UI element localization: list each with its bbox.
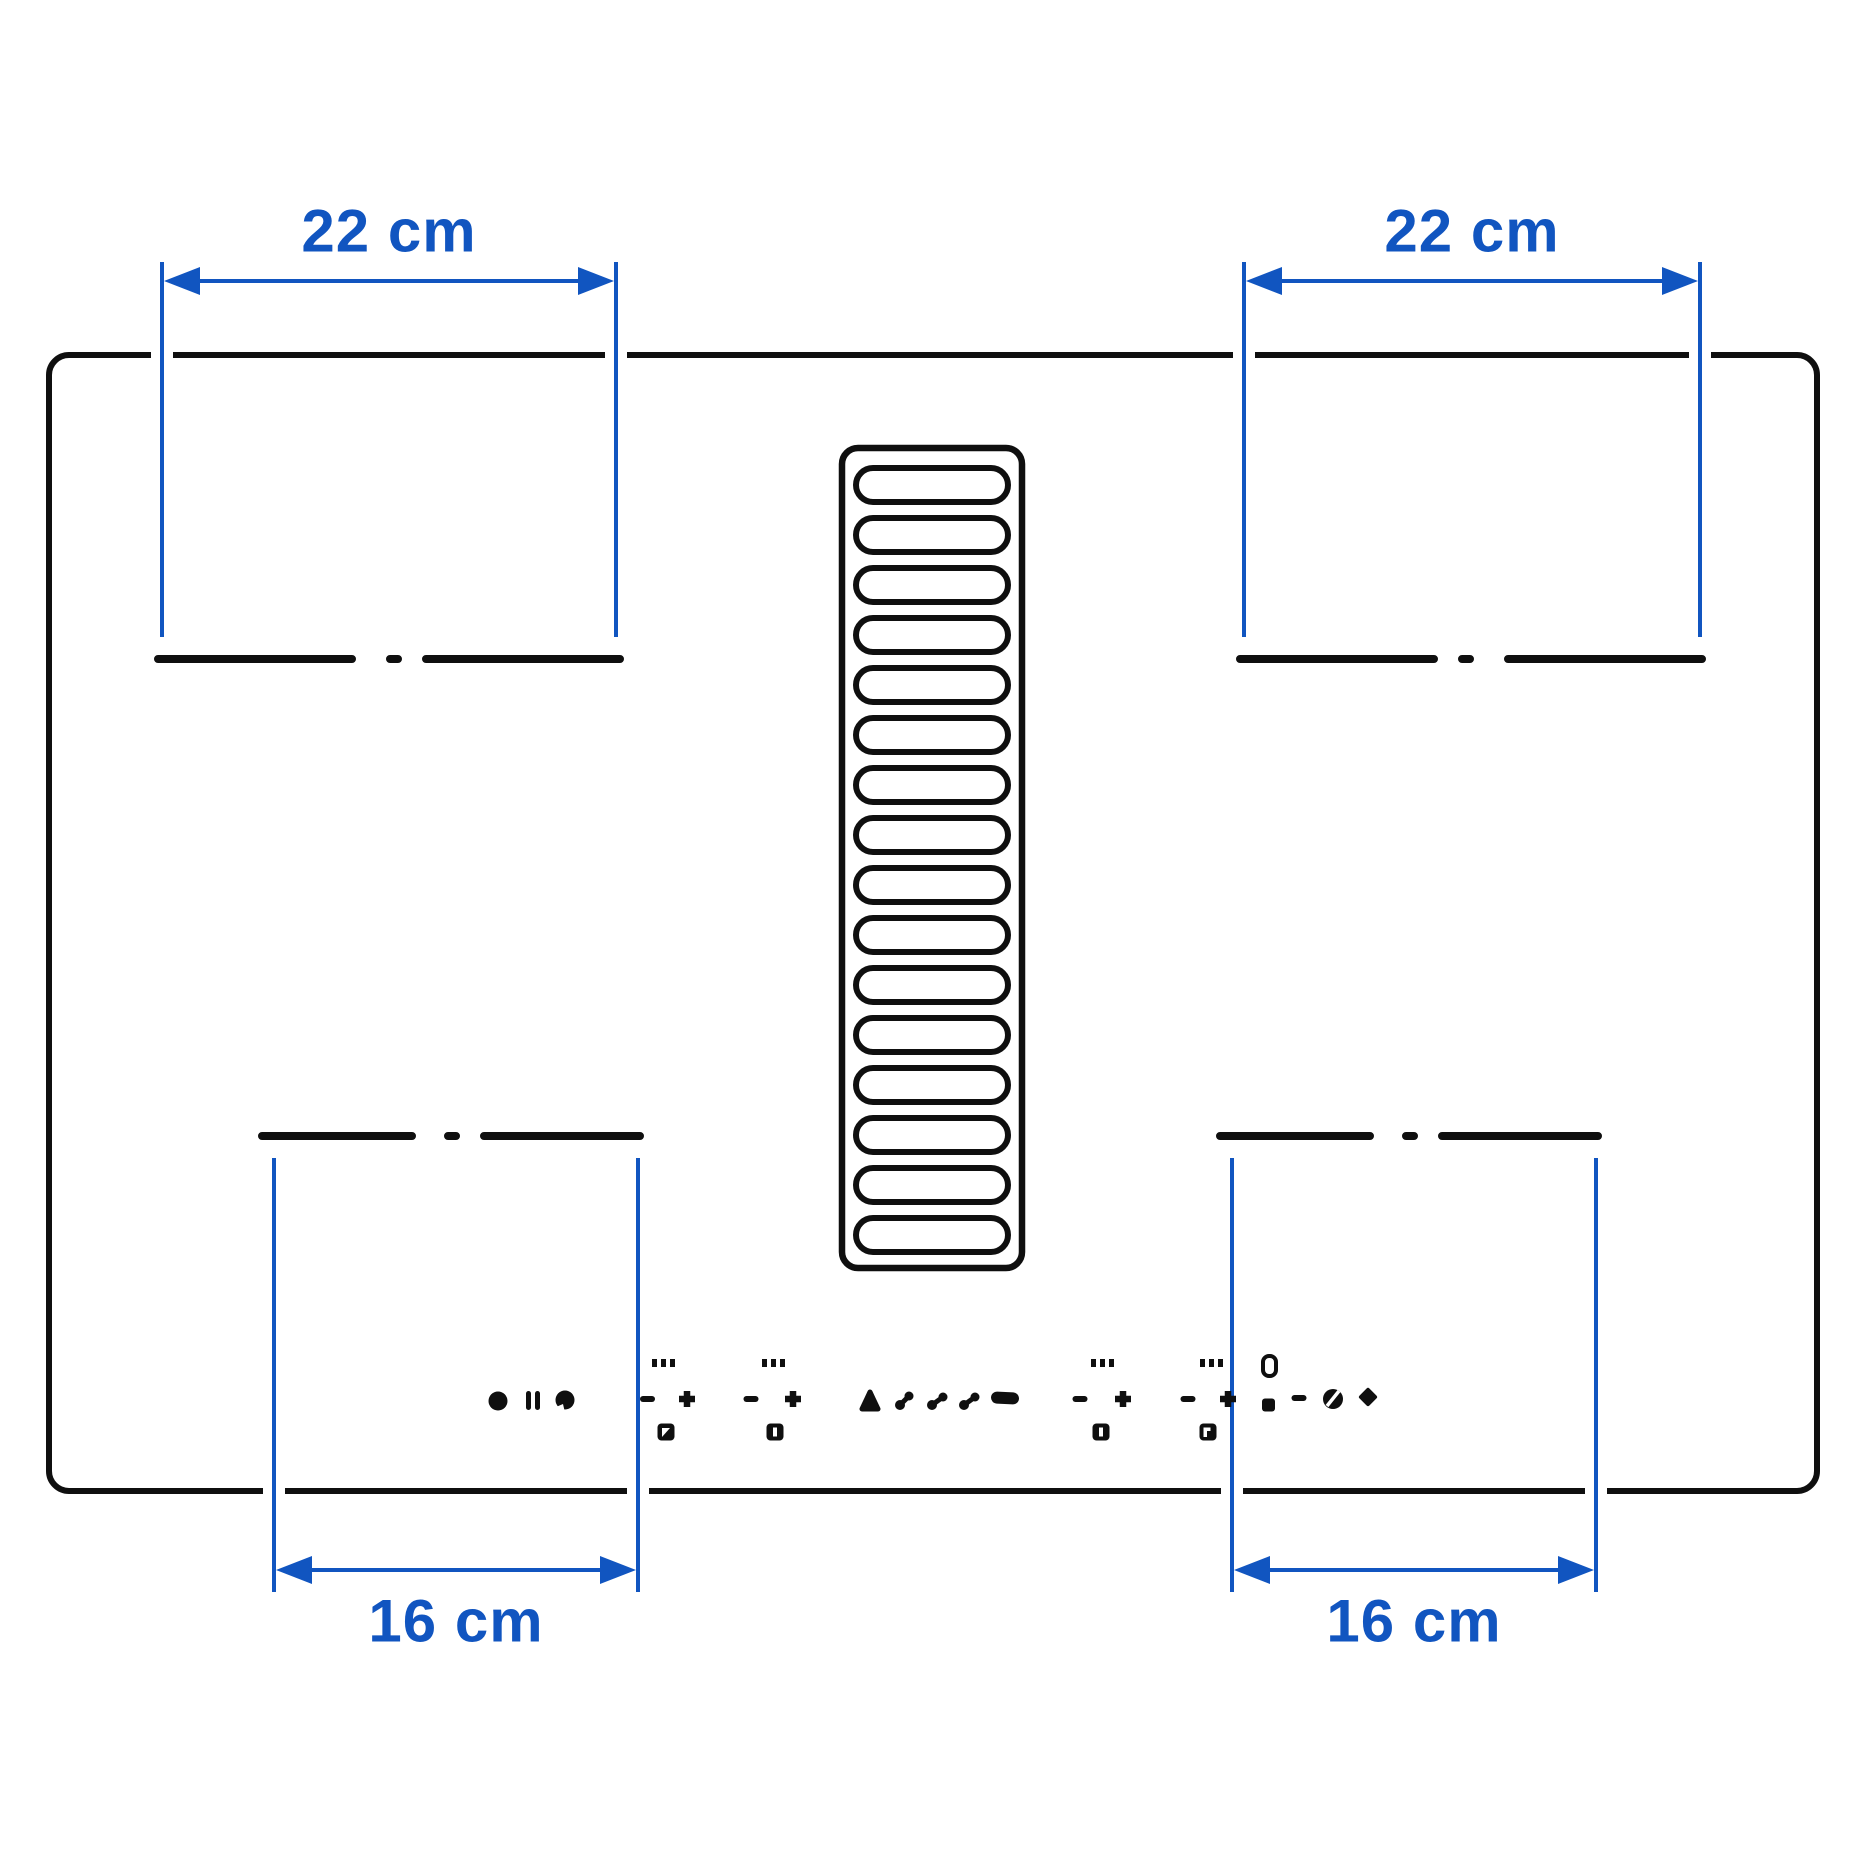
zone-front-right-select-icon — [1200, 1424, 1217, 1441]
zone-front-left-select-icon — [767, 1424, 784, 1441]
dimension-top-left — [162, 262, 616, 637]
clock-icon — [1323, 1389, 1343, 1409]
plus-icon — [679, 1391, 695, 1407]
auto-mode-icon — [862, 1392, 878, 1409]
fan-speed-1-icon — [895, 1392, 914, 1411]
grille-slot — [856, 818, 1008, 852]
minus-icon — [1073, 1396, 1088, 1402]
minus-icon — [640, 1396, 655, 1402]
grille-slot — [856, 1118, 1008, 1152]
grille-slot — [856, 1218, 1008, 1252]
arrowhead-left-icon — [1246, 267, 1282, 295]
hob-outline — [49, 355, 1817, 1491]
zone-control-rear-left — [640, 1363, 695, 1441]
arrowhead-right-icon — [1662, 267, 1698, 295]
grille-slot — [856, 968, 1008, 1002]
zone-control-front-right — [1181, 1363, 1237, 1441]
dimension-bottom-left — [274, 1158, 638, 1592]
arrowhead-left-icon — [164, 267, 200, 295]
grille-slot — [856, 618, 1008, 652]
grille-slot — [856, 1168, 1008, 1202]
diagram-drawing — [0, 0, 1860, 1860]
grille-slot — [856, 518, 1008, 552]
extractor-grille — [842, 448, 1022, 1268]
timer-indicator-icon — [1262, 1399, 1275, 1412]
grille-slot — [856, 918, 1008, 952]
zone-rear-left-select-icon — [658, 1424, 675, 1441]
minus-icon — [1181, 1396, 1196, 1402]
timer-controls — [1262, 1356, 1378, 1412]
fan-speed-3-icon — [959, 1393, 980, 1411]
grille-slot — [856, 718, 1008, 752]
dimension-top-right — [1244, 262, 1700, 637]
grille-slot — [856, 768, 1008, 802]
dimension-label-bottom-left: 16 cm — [368, 1587, 543, 1656]
grille-slot — [856, 568, 1008, 602]
grille-slot — [856, 868, 1008, 902]
dimension-label-top-left: 22 cm — [301, 197, 476, 266]
arrowhead-left-icon — [276, 1556, 312, 1584]
zone-rear-right-select-icon — [1093, 1424, 1110, 1441]
grille-slot — [856, 668, 1008, 702]
arrowhead-right-icon — [578, 267, 614, 295]
dimension-label-bottom-right: 16 cm — [1326, 1587, 1501, 1656]
extractor-controls — [862, 1391, 1019, 1410]
pause-icon — [526, 1391, 540, 1410]
grille-slot — [856, 468, 1008, 502]
dimension-bottom-right — [1232, 1158, 1596, 1592]
extractor-grille-slots — [856, 468, 1008, 1252]
arrowhead-right-icon — [600, 1556, 636, 1584]
fan-speed-2-icon — [927, 1393, 948, 1411]
grille-slot — [856, 1068, 1008, 1102]
minus-icon — [1292, 1395, 1307, 1401]
timer-display-icon — [1263, 1356, 1276, 1376]
arrowhead-right-icon — [1558, 1556, 1594, 1584]
grille-slot — [856, 1018, 1008, 1052]
grease-filter-icon — [991, 1391, 1020, 1404]
arrowhead-left-icon — [1234, 1556, 1270, 1584]
booster-diamond-icon — [1358, 1387, 1378, 1407]
minus-icon — [744, 1396, 759, 1402]
plus-icon — [1115, 1391, 1131, 1407]
dimension-label-top-right: 22 cm — [1384, 197, 1559, 266]
lock-icon — [556, 1391, 575, 1411]
power-icon — [489, 1392, 508, 1411]
zone-control-rear-right — [1073, 1363, 1132, 1441]
zone-control-front-left — [744, 1363, 802, 1441]
plus-icon — [785, 1391, 801, 1407]
control-panel — [489, 1356, 1378, 1441]
hob-dimension-diagram: 22 cm 22 cm 16 cm 16 cm — [0, 0, 1860, 1860]
